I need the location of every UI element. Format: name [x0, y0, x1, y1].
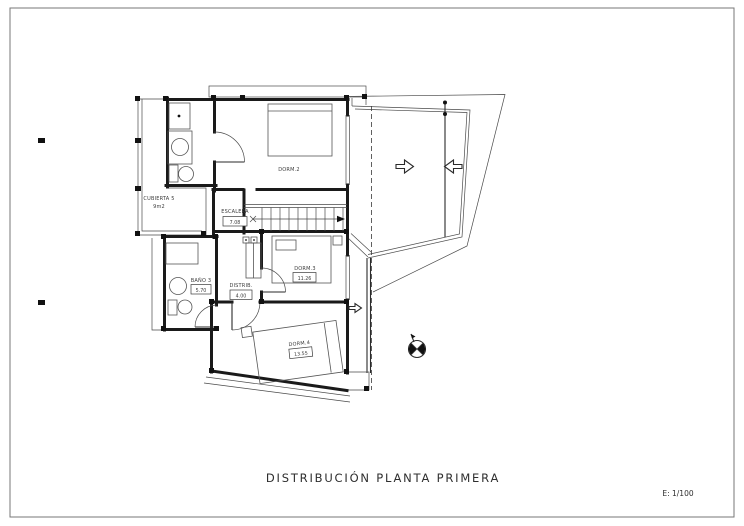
section-tick	[38, 138, 45, 143]
escalera-area: 7.08	[230, 220, 241, 226]
dorm3-area: 11.26	[298, 276, 312, 282]
dorm3-name: DORM.3	[294, 266, 316, 272]
stairs-direction-arrow	[250, 216, 343, 222]
slope-arrow-small-icon	[349, 304, 362, 313]
window-east-dorm3	[346, 255, 350, 300]
label-dorm3: DORM.3 11.26	[293, 266, 316, 282]
sink-icon	[172, 139, 189, 156]
section-tick	[38, 300, 45, 305]
page-border	[10, 8, 734, 517]
drawing-title: DISTRIBUCIÓN PLANTA PRIMERA	[266, 470, 500, 485]
toilet-icon	[169, 165, 178, 182]
pillars	[135, 94, 369, 391]
window-east-dorm2	[346, 115, 350, 185]
stairs	[244, 205, 347, 232]
toilet-icon	[168, 300, 177, 315]
window-tick	[135, 186, 141, 191]
slope-arrow-left-icon	[445, 160, 463, 173]
label-distrib: DISTRIB. 4.00	[229, 283, 252, 300]
label-dorm4: DORM.4 13.55	[288, 340, 313, 359]
bath-top	[168, 103, 194, 182]
slope-arrow-right-icon	[396, 160, 414, 173]
dorm2-name: DORM.2	[278, 167, 300, 173]
walls	[163, 98, 348, 391]
label-cubierta: CUBIERTA 5 9m2	[143, 196, 174, 210]
label-escalera: ESCALERA 7.08	[221, 209, 249, 226]
closet-distrib	[243, 237, 261, 278]
cubierta-name: CUBIERTA 5	[143, 196, 174, 202]
bano3-name: BAÑO 3	[191, 277, 212, 284]
drawing-sheet: CUBIERTA 5 9m2 ESCALERA 7.08 DORM.2 DORM…	[0, 0, 744, 526]
sink-icon	[170, 278, 187, 295]
window-tick	[135, 138, 141, 143]
distrib-area: 4.00	[236, 293, 247, 299]
floor-plan-svg: CUBIERTA 5 9m2 ESCALERA 7.08 DORM.2 DORM…	[0, 0, 744, 526]
label-bano3: BAÑO 3 5.70	[191, 277, 212, 294]
escalera-name: ESCALERA	[221, 209, 249, 215]
scale-label: E: 1/100	[662, 489, 693, 498]
bano3-area: 5.70	[196, 288, 207, 294]
label-dorm2: DORM.2	[278, 167, 300, 173]
north-compass-icon	[409, 334, 426, 358]
bed-dorm2	[268, 104, 332, 156]
distrib-name: DISTRIB.	[229, 283, 252, 289]
cubierta-area: 9m2	[153, 204, 165, 210]
exterior-outlines	[138, 86, 505, 402]
